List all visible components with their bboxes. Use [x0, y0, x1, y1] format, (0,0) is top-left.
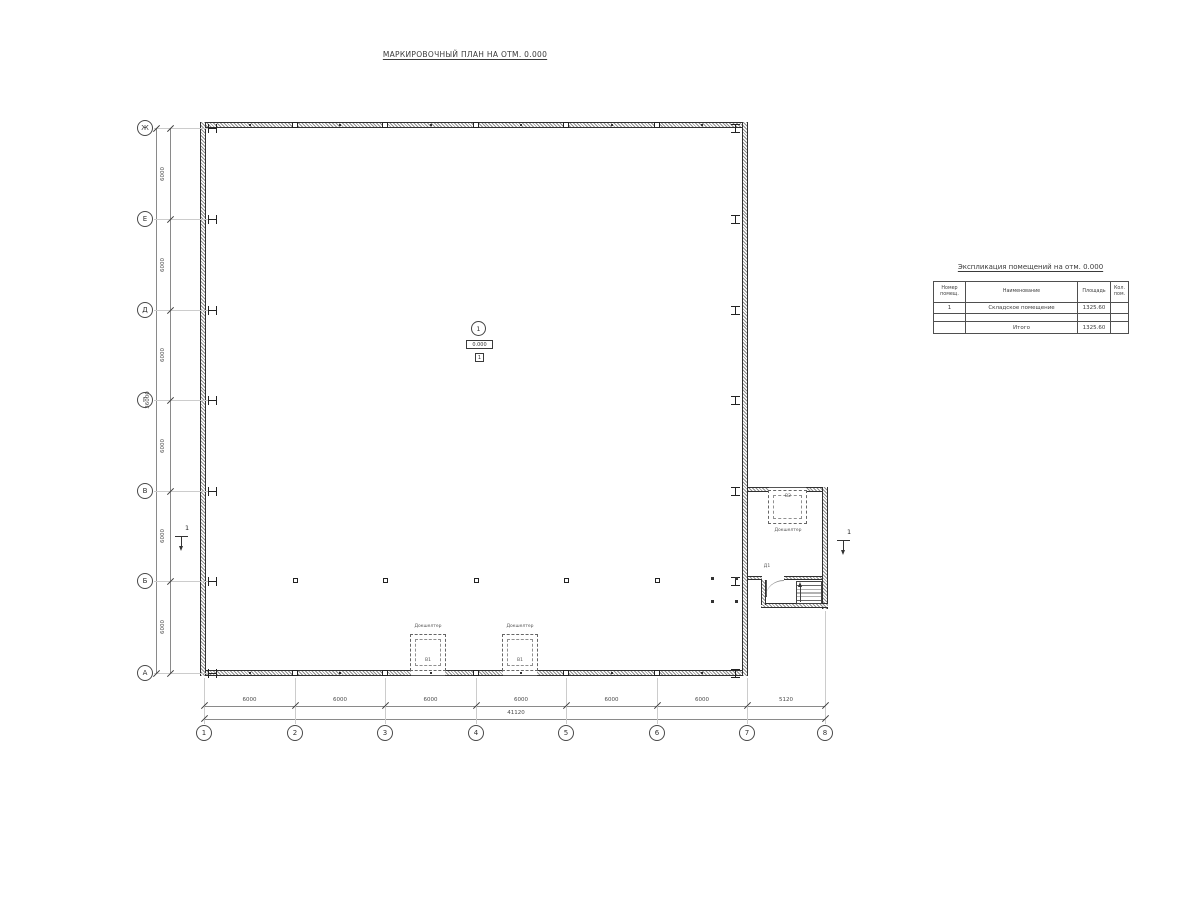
ibeam-column-icon [208, 124, 217, 133]
wall-column-square [654, 670, 660, 676]
schedule-title: Экспликация помещений на отм. 0.000 [933, 263, 1128, 271]
row-axis-line [154, 128, 213, 129]
ibeam-column-icon [731, 215, 740, 224]
interior-column-square [564, 578, 569, 583]
interior-column-square [655, 578, 660, 583]
door-swing-arc-icon [766, 580, 784, 596]
interior-column-square [383, 578, 388, 583]
dock-shelter-label: Докшелтер [758, 528, 818, 534]
gate-mark: В2 [773, 494, 803, 500]
dim-label: 5120 [769, 697, 803, 704]
empty-cell [966, 314, 1078, 322]
wall-vestibule-top-a [748, 576, 762, 580]
col-axis-bubble: 1 [196, 725, 212, 741]
dim-label: 6000 [160, 519, 168, 553]
post-dot [735, 600, 738, 603]
wall-stud-dot [430, 124, 432, 126]
room-schedule-table: Номер помещ. Наименование Площадь Кол. п… [933, 281, 1129, 334]
interior-column-square [474, 578, 479, 583]
wall-stud-dot [249, 124, 251, 126]
wall-east [742, 122, 748, 676]
col-axis-bubble: 5 [558, 725, 574, 741]
row-axis-bubble: В [137, 483, 153, 499]
room-elevation-box: 0.000 [466, 340, 493, 349]
wall-column-square [382, 122, 388, 128]
stairs-arrow-icon [798, 582, 802, 587]
post-dot [711, 600, 714, 603]
wall-stud-dot [430, 672, 432, 674]
dim-label: 6000 [504, 697, 538, 704]
row-axis-line [154, 491, 213, 492]
wall-west [200, 122, 206, 676]
room-number-cell: 1 [934, 303, 966, 314]
ibeam-column-icon [731, 396, 740, 405]
col-axis-line [825, 611, 826, 724]
wall-stud-dot [611, 124, 613, 126]
col-axis-bubble: 2 [287, 725, 303, 741]
room-number-bubble: 1 [471, 321, 486, 336]
room-count-cell [1111, 303, 1129, 314]
wall-column-square [563, 670, 569, 676]
col-axis-bubble: 6 [649, 725, 665, 741]
col-header: Кол. пом. [1111, 282, 1129, 303]
wall-stud-dot [520, 124, 522, 126]
section-mark-line [843, 540, 844, 550]
row-axis-line [154, 581, 213, 582]
gate-mark: В1 [505, 658, 535, 664]
dim-label: 6000 [595, 697, 629, 704]
dim-label: 6000 [323, 697, 357, 704]
wall-column-square [473, 670, 479, 676]
col-axis-bubble: 8 [817, 725, 833, 741]
dim-total-label: 41120 [491, 710, 541, 717]
wall-column-square [654, 122, 660, 128]
post-dot [711, 577, 714, 580]
col-axis-line [385, 678, 386, 724]
wall-column-square [473, 122, 479, 128]
dock-shelter-outline [502, 634, 538, 671]
empty-cell [1111, 322, 1129, 334]
dim-total-label: 36000 [145, 375, 153, 425]
dim-label: 6000 [233, 697, 267, 704]
col-axis-line [657, 678, 658, 724]
ibeam-column-icon [208, 577, 217, 586]
wall-column-square [292, 670, 298, 676]
section-arrow-icon [179, 546, 183, 551]
ibeam-column-icon [208, 215, 217, 224]
room-name-cell: Складское помещение [966, 303, 1078, 314]
section-mark-number: 1 [185, 524, 189, 532]
gate-mark: В1 [413, 658, 443, 664]
table-total-row: Итого 1325.60 [934, 322, 1129, 334]
dim-line [204, 706, 825, 707]
ibeam-column-icon [208, 396, 217, 405]
dim-label: 6000 [160, 338, 168, 372]
wall-annex-right [822, 487, 828, 609]
stairs-direction-line [800, 585, 801, 602]
row-axis-bubble: Д [137, 302, 153, 318]
floor-type-box: 1 [475, 353, 484, 362]
ibeam-column-icon [208, 306, 217, 315]
row-axis-line [154, 219, 213, 220]
col-axis-bubble: 7 [739, 725, 755, 741]
wall-stud-dot [249, 672, 251, 674]
plan-area: 1 0.000 1 Докшелтер В1 Докшелтер В1 В2 Д… [0, 0, 1200, 900]
empty-cell [1078, 314, 1111, 322]
row-axis-line [154, 673, 213, 674]
total-label-cell: Итого [966, 322, 1078, 334]
wall-stud-dot [701, 672, 703, 674]
dim-label: 6000 [160, 429, 168, 463]
wall-stud-dot [611, 672, 613, 674]
row-axis-bubble: Ж [137, 120, 153, 136]
table-row-empty [934, 314, 1129, 322]
dim-label: 6000 [685, 697, 719, 704]
row-axis-bubble: Е [137, 211, 153, 227]
ibeam-column-icon [731, 306, 740, 315]
wall-column-square [563, 122, 569, 128]
interior-column-square [293, 578, 298, 583]
col-axis-line [476, 678, 477, 724]
dim-label: 6000 [160, 248, 168, 282]
ibeam-column-icon [731, 124, 740, 133]
ibeam-column-icon [208, 487, 217, 496]
row-axis-line [154, 400, 213, 401]
dim-label: 6000 [414, 697, 448, 704]
section-mark-line [181, 536, 182, 546]
dock-shelter-label: Докшелтер [398, 624, 458, 630]
ibeam-column-icon [208, 669, 217, 678]
col-axis-line [747, 678, 748, 724]
wall-stud-dot [520, 672, 522, 674]
col-axis-line [295, 678, 296, 724]
row-axis-bubble: А [137, 665, 153, 681]
wall-vestibule-top-b [784, 576, 822, 580]
col-axis-line [566, 678, 567, 724]
floor-plan-canvas: МАРКИРОВОЧНЫЙ ПЛАН НА ОТМ. 0.000 1 0.000… [0, 0, 1200, 900]
col-axis-bubble: 4 [468, 725, 484, 741]
door-mark: Д1 [758, 564, 776, 570]
table-row: 1 Складское помещение 1325.60 [934, 303, 1129, 314]
section-mark-number: 1 [847, 528, 851, 536]
table-header-row: Номер помещ. Наименование Площадь Кол. п… [934, 282, 1129, 303]
row-axis-bubble: Б [137, 573, 153, 589]
row-axis-line [154, 310, 213, 311]
empty-cell [1111, 314, 1129, 322]
wall-stud-dot [701, 124, 703, 126]
section-arrow-icon [841, 550, 845, 555]
dim-label: 6000 [160, 610, 168, 644]
empty-cell [934, 322, 966, 334]
col-header: Номер помещ. [934, 282, 966, 303]
wall-column-square [382, 670, 388, 676]
wall-column-square [292, 122, 298, 128]
dim-line [204, 719, 825, 720]
empty-cell [934, 314, 966, 322]
wall-stud-dot [339, 124, 341, 126]
room-area-cell: 1325.60 [1078, 303, 1111, 314]
col-header: Площадь [1078, 282, 1111, 303]
col-header: Наименование [966, 282, 1078, 303]
wall-stud-dot [339, 672, 341, 674]
total-value-cell: 1325.60 [1078, 322, 1111, 334]
dock-shelter-outline [410, 634, 446, 671]
ibeam-column-icon [731, 669, 740, 678]
ibeam-column-icon [731, 487, 740, 496]
dock-shelter-label: Докшелтер [490, 624, 550, 630]
post-dot [735, 577, 738, 580]
col-axis-bubble: 3 [377, 725, 393, 741]
dim-label: 6000 [160, 157, 168, 191]
